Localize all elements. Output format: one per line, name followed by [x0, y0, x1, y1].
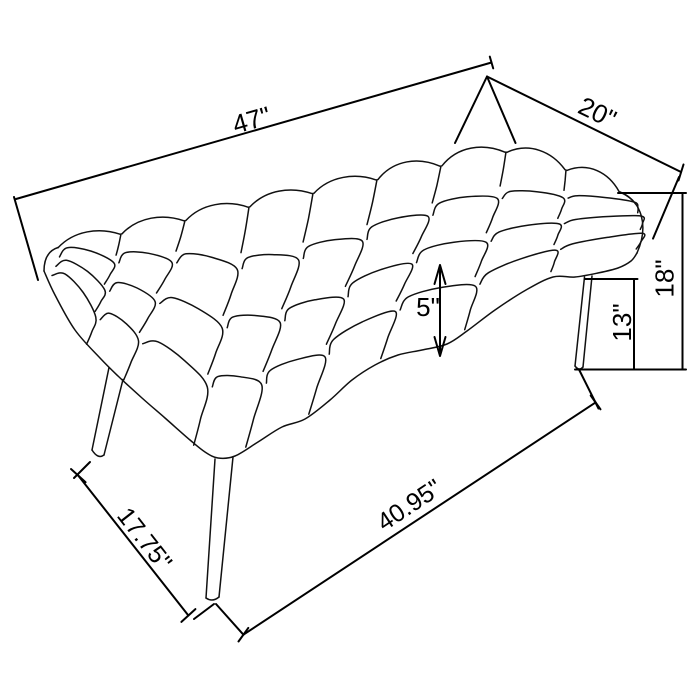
svg-text:5": 5" [416, 292, 440, 322]
svg-text:47": 47" [229, 100, 274, 139]
svg-text:18": 18" [650, 259, 680, 297]
svg-text:17.75": 17.75" [111, 502, 177, 576]
svg-text:13": 13" [607, 303, 637, 341]
svg-text:20": 20" [574, 91, 621, 135]
svg-text:40.95": 40.95" [372, 474, 447, 537]
